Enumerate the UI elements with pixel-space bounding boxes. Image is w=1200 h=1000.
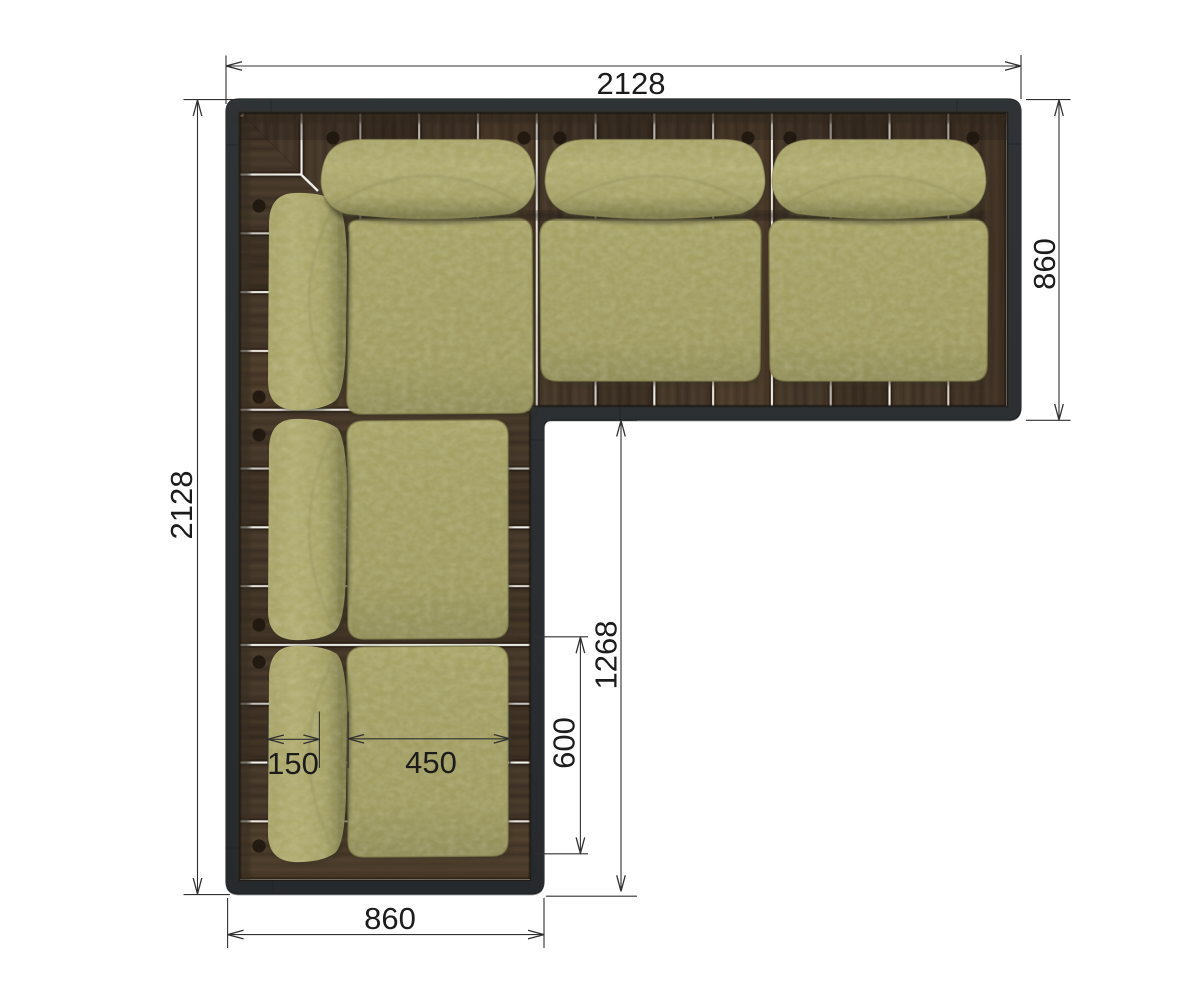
svg-text:600: 600 bbox=[547, 717, 582, 769]
svg-text:450: 450 bbox=[405, 745, 457, 780]
svg-text:1268: 1268 bbox=[589, 621, 624, 690]
svg-text:2128: 2128 bbox=[597, 66, 666, 101]
svg-text:150: 150 bbox=[267, 746, 319, 781]
svg-text:860: 860 bbox=[1027, 238, 1062, 290]
svg-text:2128: 2128 bbox=[164, 471, 199, 540]
svg-text:860: 860 bbox=[364, 901, 416, 936]
